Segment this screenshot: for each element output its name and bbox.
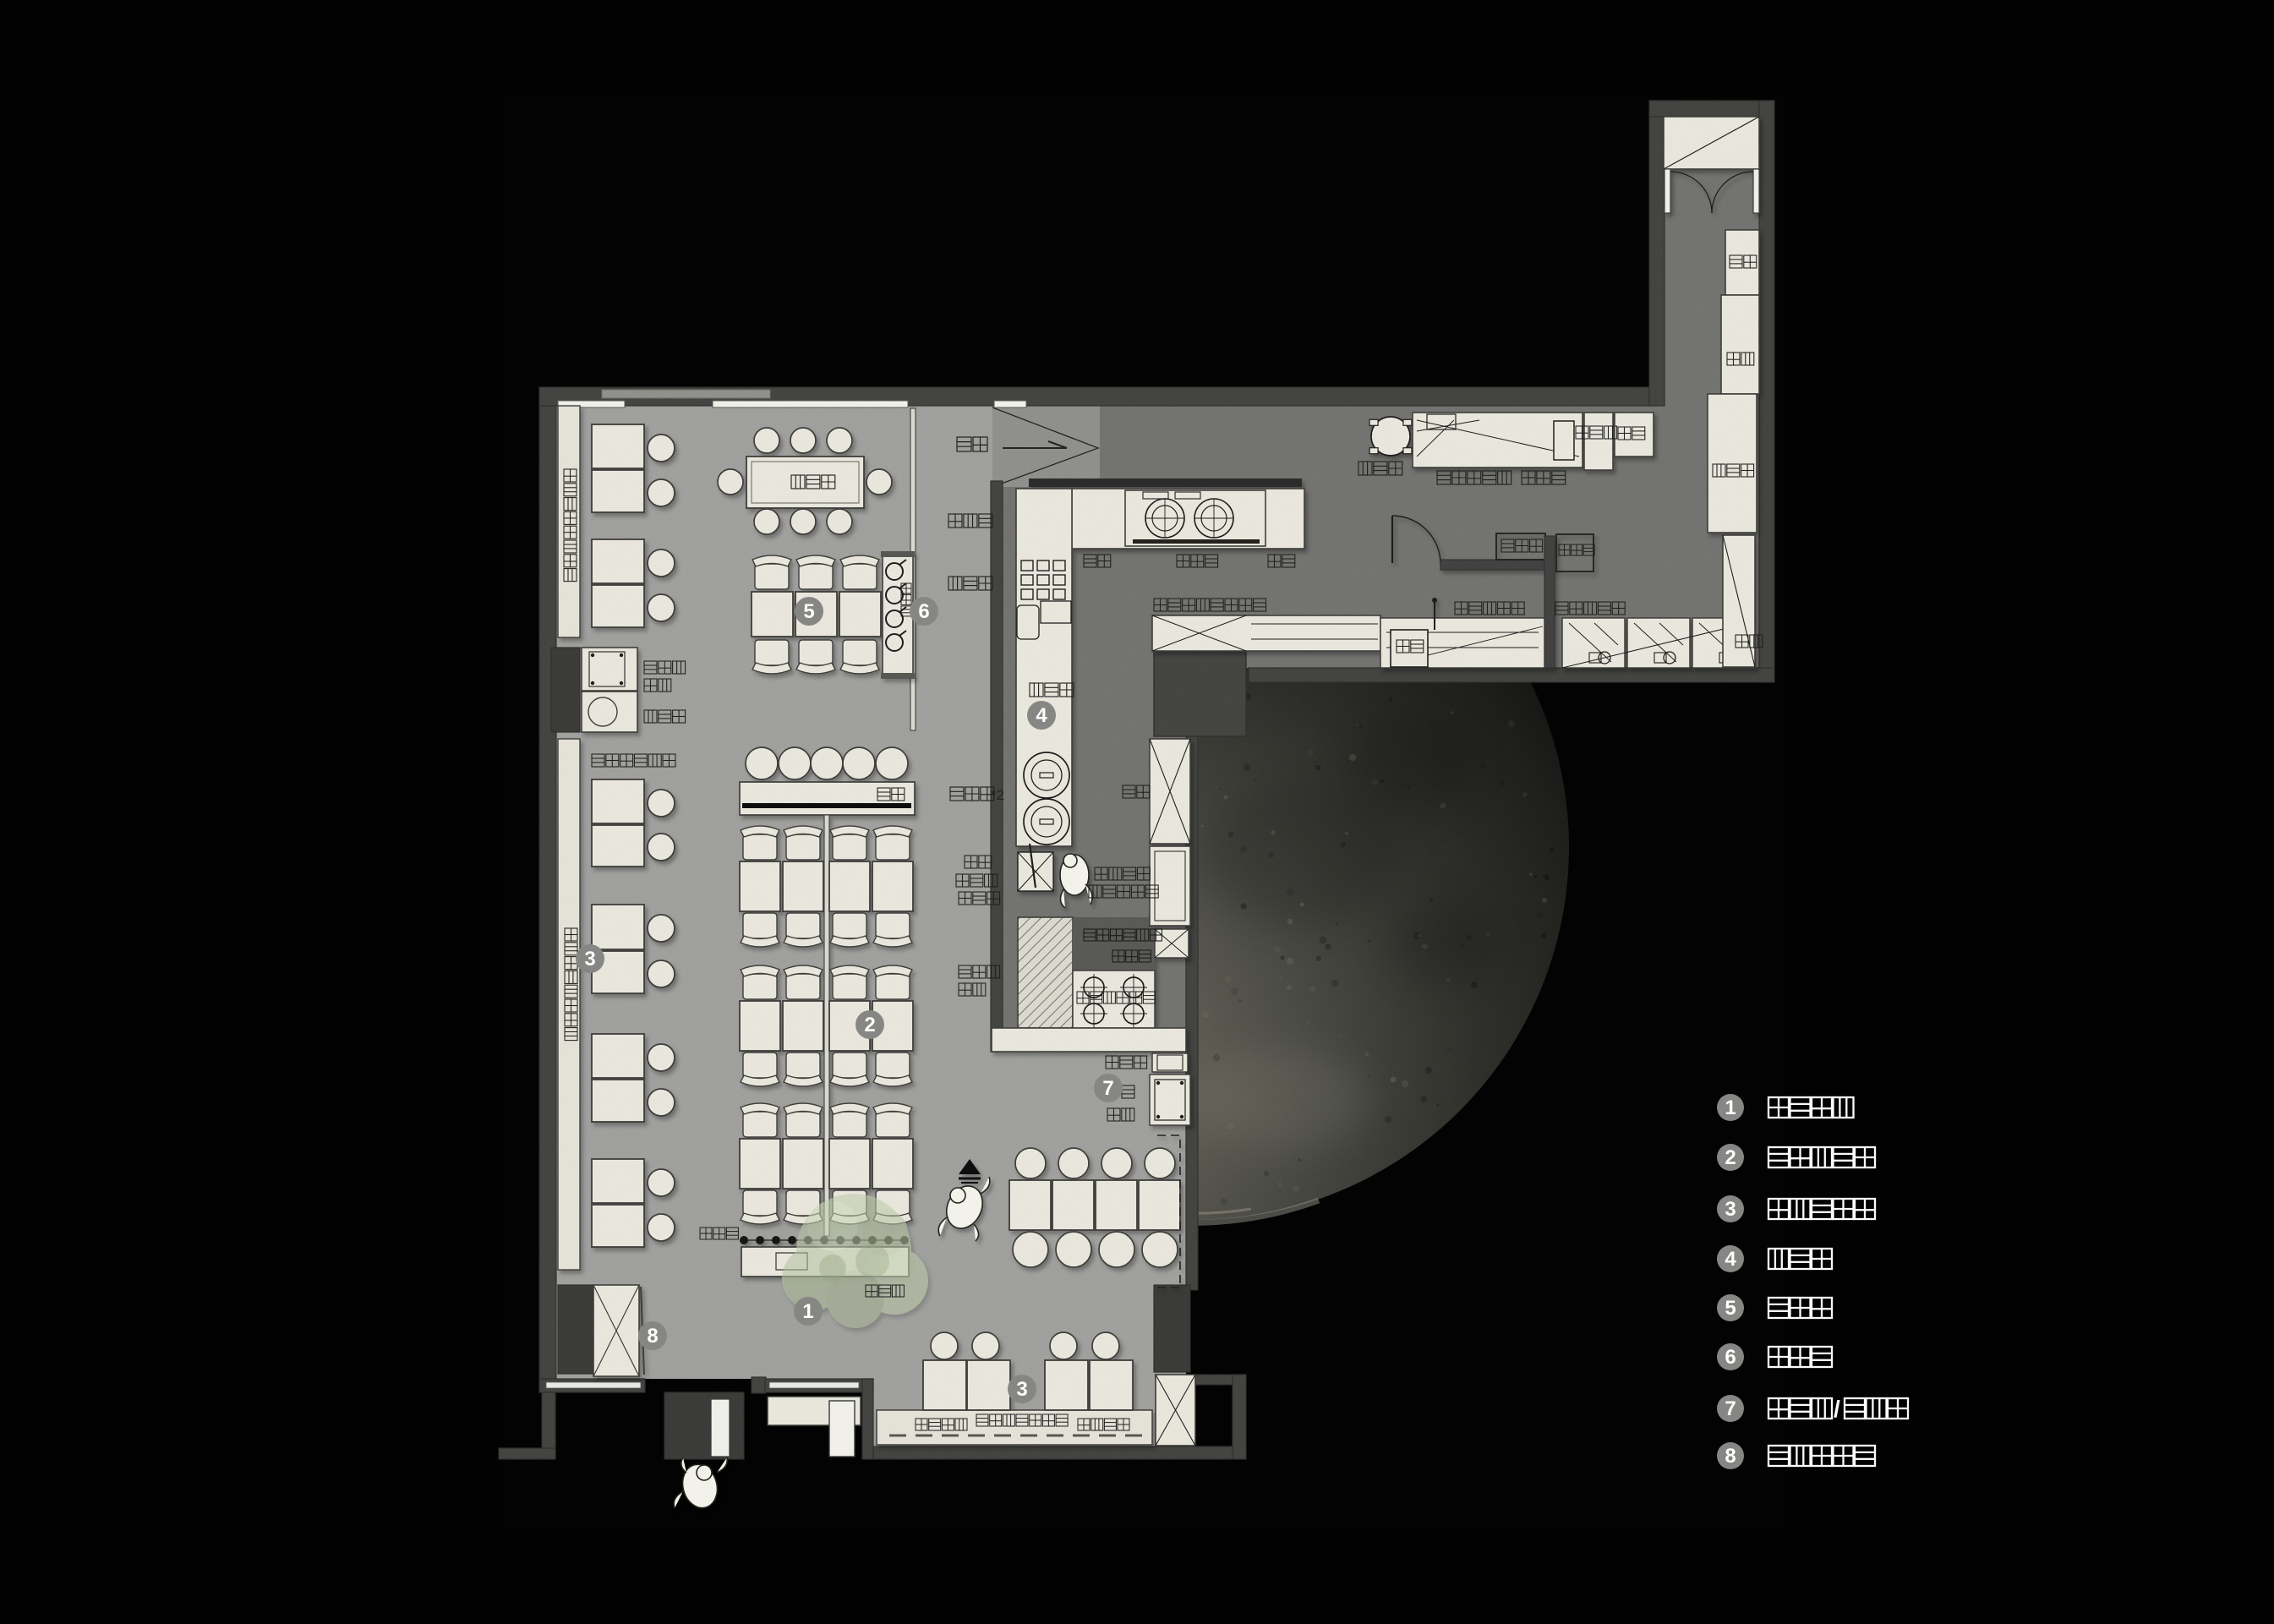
svg-text:4: 4 — [1725, 1248, 1736, 1271]
svg-text:5: 5 — [1725, 1297, 1736, 1320]
svg-text:1: 1 — [1725, 1096, 1736, 1119]
svg-text:6: 6 — [1725, 1346, 1736, 1369]
svg-text:1: 1 — [802, 1300, 813, 1323]
svg-text:7: 7 — [1102, 1077, 1113, 1100]
svg-text:6: 6 — [918, 600, 929, 623]
svg-text:5: 5 — [803, 600, 814, 623]
svg-text:3: 3 — [1016, 1378, 1027, 1401]
svg-text:8: 8 — [1725, 1445, 1736, 1468]
svg-text:3: 3 — [1725, 1198, 1736, 1221]
svg-text:2: 2 — [864, 1014, 875, 1036]
svg-text:*2: *2 — [991, 787, 1004, 803]
svg-text:4: 4 — [1036, 704, 1047, 727]
svg-text:7: 7 — [1725, 1397, 1736, 1420]
svg-text:8: 8 — [647, 1325, 658, 1348]
svg-text:2: 2 — [1725, 1146, 1736, 1169]
svg-text:3: 3 — [584, 948, 595, 971]
svg-text:/: / — [1834, 1396, 1840, 1422]
